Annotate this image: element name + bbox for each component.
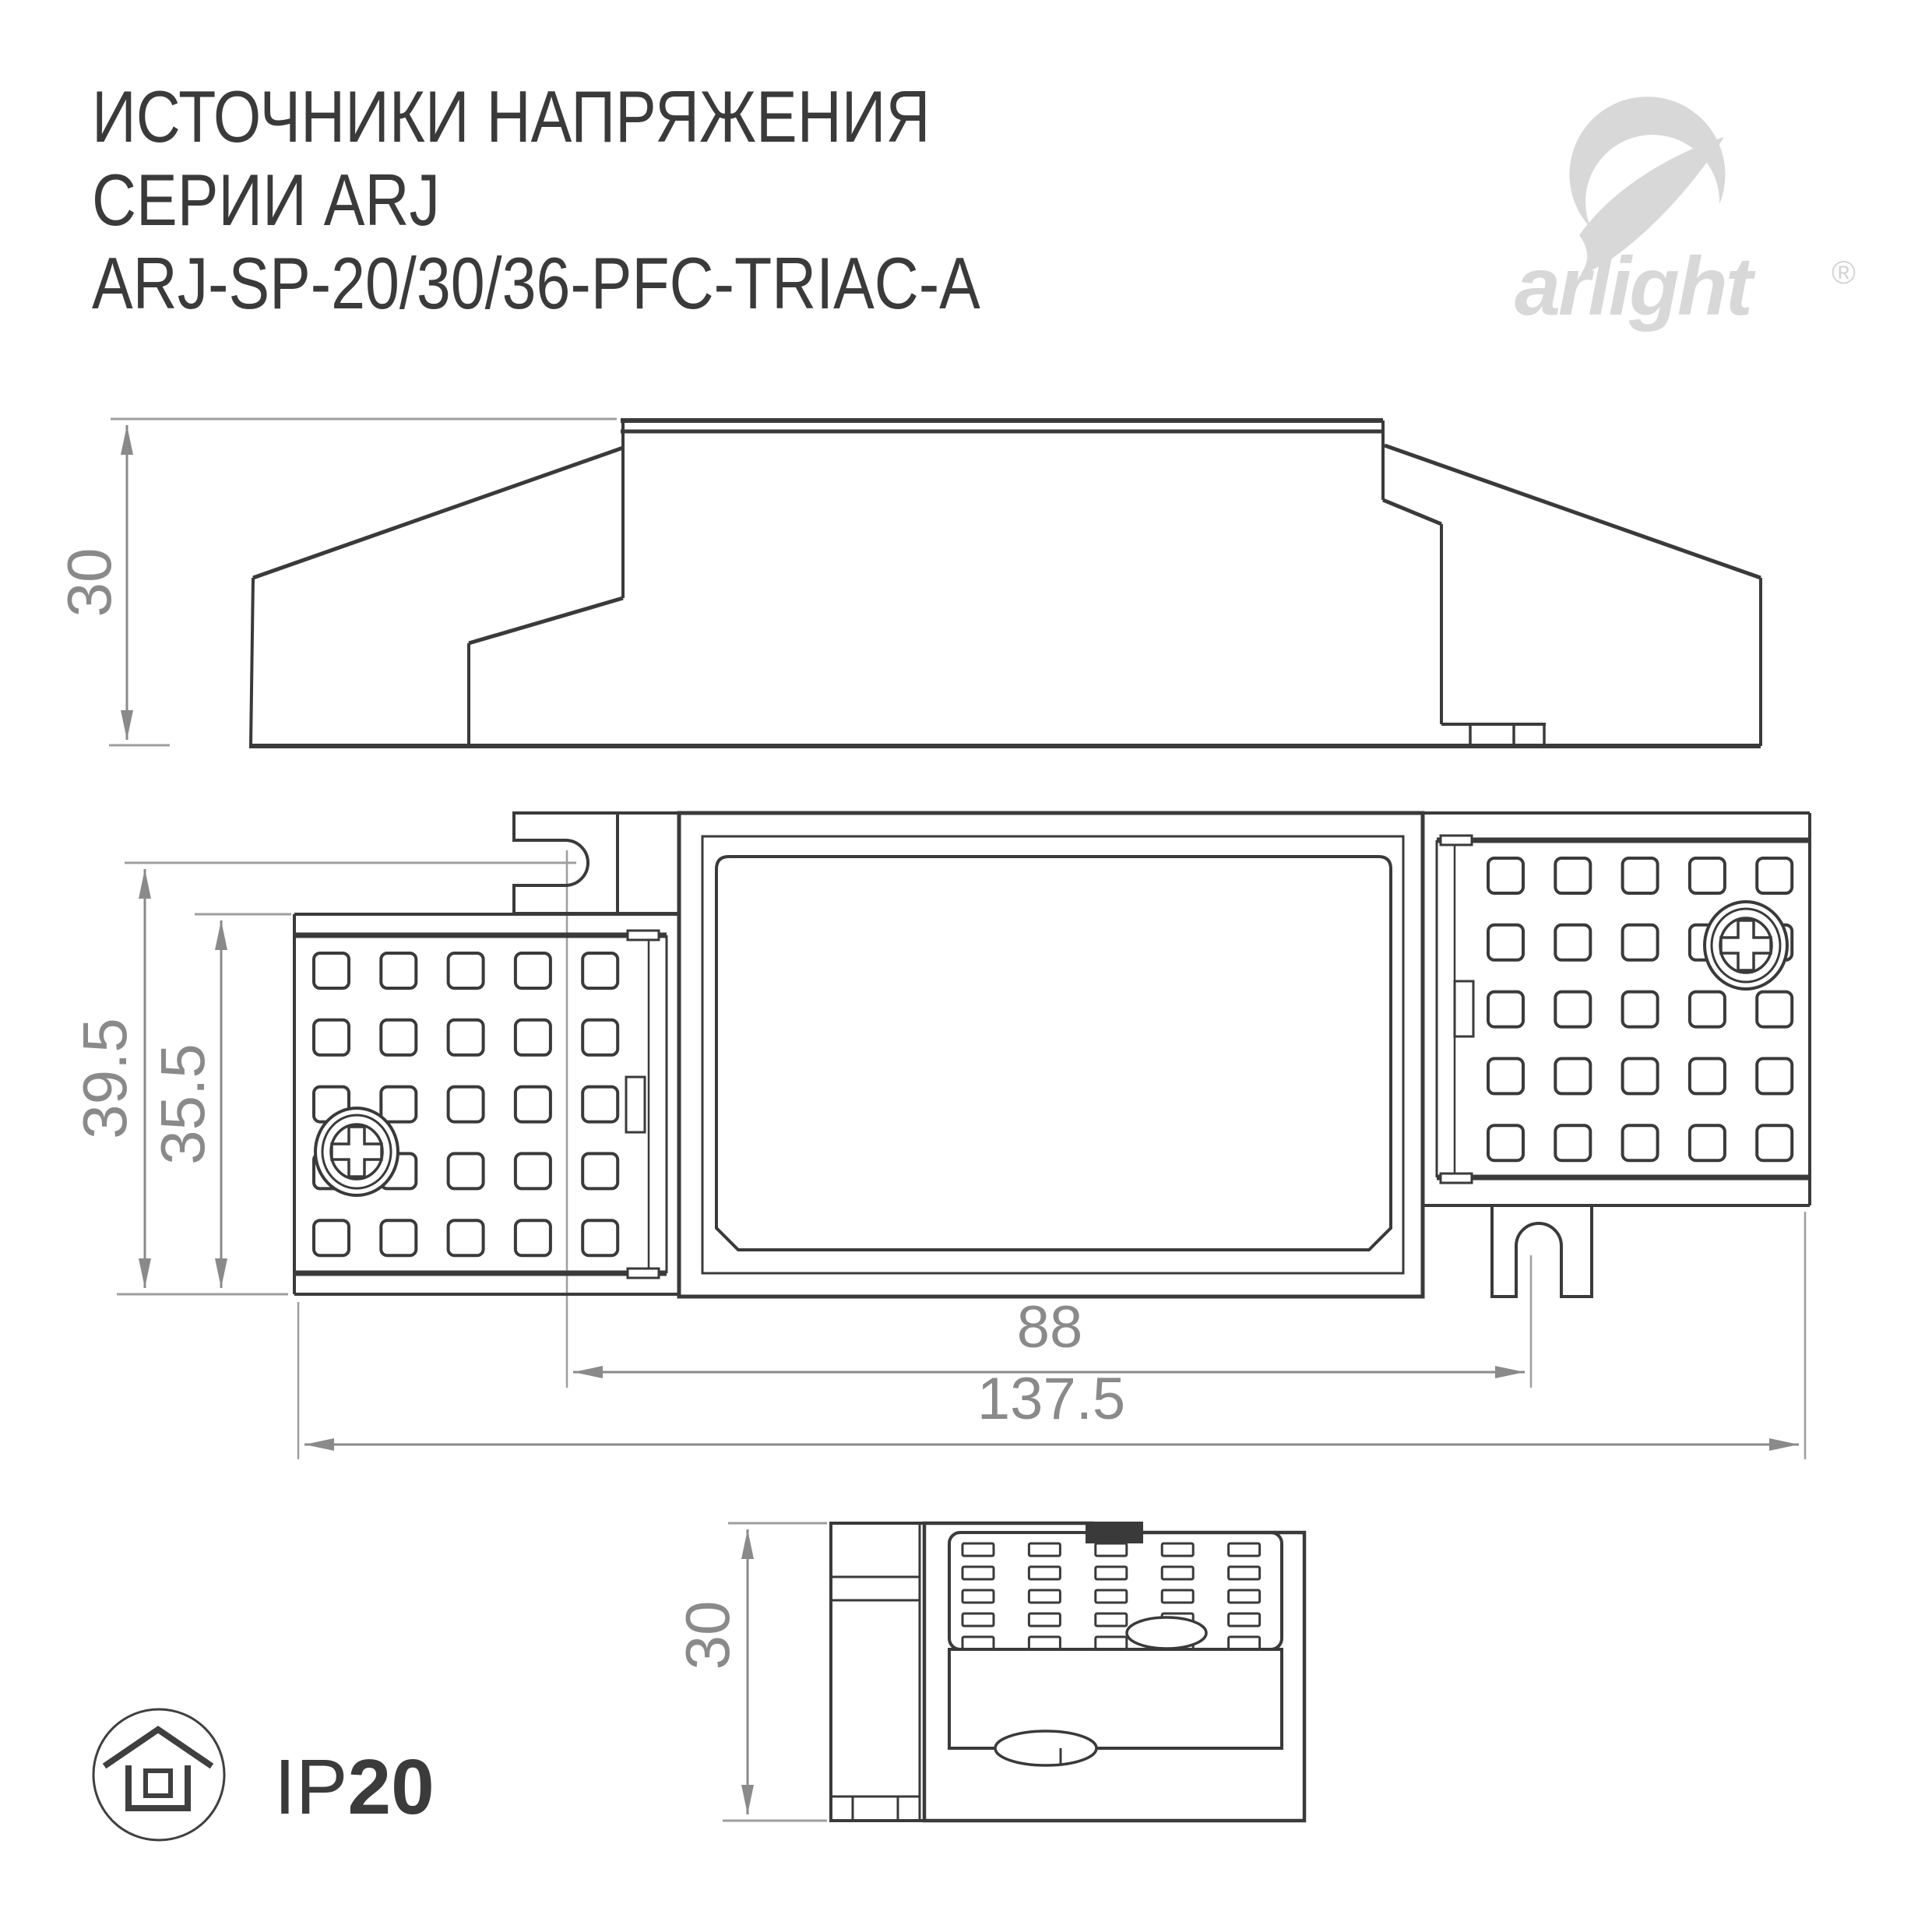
vent-hole <box>1623 858 1658 893</box>
vent-hole <box>582 1220 618 1255</box>
vent-hole <box>582 1087 618 1122</box>
dimension-labels: 30 39.5 35.5 88 137.5 30 <box>55 548 1125 1670</box>
vent-hole <box>1229 1637 1260 1649</box>
vent-hole <box>582 1020 618 1055</box>
vent-hole <box>1757 992 1792 1027</box>
vent-hole <box>1623 1125 1658 1160</box>
vent-hole <box>1757 858 1792 893</box>
side-view <box>249 420 1761 746</box>
terminal-block-right <box>1423 813 1810 1205</box>
tv-body-lid <box>716 857 1391 1250</box>
ip-value: 20 <box>347 1744 434 1831</box>
vent-hole <box>1029 1614 1060 1626</box>
tv-body-mid <box>702 836 1403 1273</box>
vent-hole <box>1162 1567 1193 1579</box>
vent-hole <box>449 1220 484 1255</box>
ip-badge <box>93 1709 224 1840</box>
vent-hole <box>516 953 551 988</box>
vent-hole <box>1690 1058 1725 1093</box>
vent-hole <box>582 1153 618 1188</box>
vent-hole <box>1096 1567 1127 1579</box>
dim-end-height-label: 30 <box>673 1601 742 1670</box>
dim-plan-outer-label: 39.5 <box>70 1018 139 1139</box>
vent-hole <box>962 1567 994 1579</box>
vent-hole <box>1096 1614 1127 1626</box>
sv-left-bevel <box>253 448 623 578</box>
vent-hole <box>516 1153 551 1188</box>
terminal-block-left <box>294 914 679 1294</box>
vent-hole <box>449 1153 484 1188</box>
vent-hole <box>962 1614 994 1626</box>
vent-hole <box>381 1220 416 1255</box>
vent-hole <box>1488 1058 1523 1093</box>
vent-hole <box>1029 1543 1060 1556</box>
vent-hole <box>1229 1590 1260 1603</box>
vent-hole <box>1029 1567 1060 1579</box>
vent-hole <box>1096 1637 1127 1649</box>
vent-hole <box>381 953 416 988</box>
vent-hole <box>1162 1590 1193 1603</box>
screw-right <box>1705 902 1787 989</box>
ev-notch <box>1086 1522 1143 1543</box>
vent-hole <box>1690 1125 1725 1160</box>
vent-hole <box>1690 992 1725 1027</box>
vent-hole <box>516 1020 551 1055</box>
house-icon <box>104 1730 212 1808</box>
vent-hole <box>1555 858 1590 893</box>
vent-grid-end <box>962 1543 1260 1649</box>
vent-hole <box>381 1020 416 1055</box>
vent-hole <box>1488 858 1523 893</box>
vent-hole <box>314 1020 349 1055</box>
vent-hole <box>449 953 484 988</box>
vent-hole <box>1623 925 1658 960</box>
vent-hole <box>449 1020 484 1055</box>
vent-hole <box>1229 1567 1260 1579</box>
title-line-2: СЕРИИ ARJ <box>92 158 980 241</box>
vent-hole <box>962 1590 994 1603</box>
vent-hole <box>1555 925 1590 960</box>
ev-oval-upper <box>1127 1617 1206 1649</box>
vent-hole <box>962 1543 994 1556</box>
vent-hole <box>314 1220 349 1255</box>
vent-hole <box>1229 1614 1260 1626</box>
vent-hole <box>1096 1543 1127 1556</box>
screw-left <box>315 1108 398 1195</box>
vent-hole <box>449 1087 484 1122</box>
vent-hole <box>516 1087 551 1122</box>
ip-rating: IP20 <box>274 1743 435 1832</box>
vent-hole <box>1488 925 1523 960</box>
dim-plan-inner-label: 35.5 <box>148 1043 217 1165</box>
title-line-3: ARJ-SP-20/30/36-PFC-TRIAC-A <box>92 241 980 325</box>
vent-hole <box>1555 1125 1590 1160</box>
vent-hole <box>1162 1543 1193 1556</box>
vent-hole <box>516 1220 551 1255</box>
end-view <box>831 1522 1304 1821</box>
title-line-1: ИСТОЧНИКИ НАПРЯЖЕНИЯ <box>92 75 980 158</box>
vent-hole <box>1757 1058 1792 1093</box>
sv-right-inner-bevel <box>1383 500 1441 524</box>
vent-grid-left <box>314 953 618 1255</box>
mount-tab-bottom <box>1492 1205 1592 1297</box>
sv-left-inner-bevel <box>469 598 623 643</box>
tv-body-outer <box>679 813 1423 1297</box>
vent-hole <box>1229 1543 1260 1556</box>
vent-hole <box>1623 1058 1658 1093</box>
vent-hole <box>1096 1590 1127 1603</box>
dim-mount-spacing-label: 88 <box>1017 1294 1083 1360</box>
ip-prefix: IP <box>274 1744 347 1831</box>
dim-overall-length-label: 137.5 <box>977 1366 1125 1432</box>
ev-oval-lower <box>995 1731 1096 1765</box>
page-title: ИСТОЧНИКИ НАПРЯЖЕНИЯ СЕРИИ ARJ ARJ-SP-20… <box>92 75 980 325</box>
ev-clip <box>831 1523 924 1821</box>
vent-hole <box>1488 1125 1523 1160</box>
sv-left-edge <box>251 578 253 746</box>
vent-hole <box>1623 992 1658 1027</box>
vent-hole <box>1029 1637 1060 1649</box>
top-view <box>294 813 1810 1297</box>
vent-hole <box>314 953 349 988</box>
vent-hole <box>1757 1125 1792 1160</box>
vent-hole <box>1488 992 1523 1027</box>
vent-hole <box>1690 858 1725 893</box>
vent-hole <box>1555 1058 1590 1093</box>
dim-side-height-label: 30 <box>55 548 124 618</box>
vent-hole <box>1029 1590 1060 1603</box>
arlight-logo-text: arlight <box>1515 240 1751 334</box>
vent-hole <box>582 953 618 988</box>
ev-label-area <box>949 1649 1282 1748</box>
vent-hole <box>962 1637 994 1649</box>
registered-mark: ® <box>1832 254 1856 291</box>
vent-hole <box>1555 992 1590 1027</box>
vent-hole <box>381 1087 416 1122</box>
sv-foot <box>1470 724 1544 745</box>
